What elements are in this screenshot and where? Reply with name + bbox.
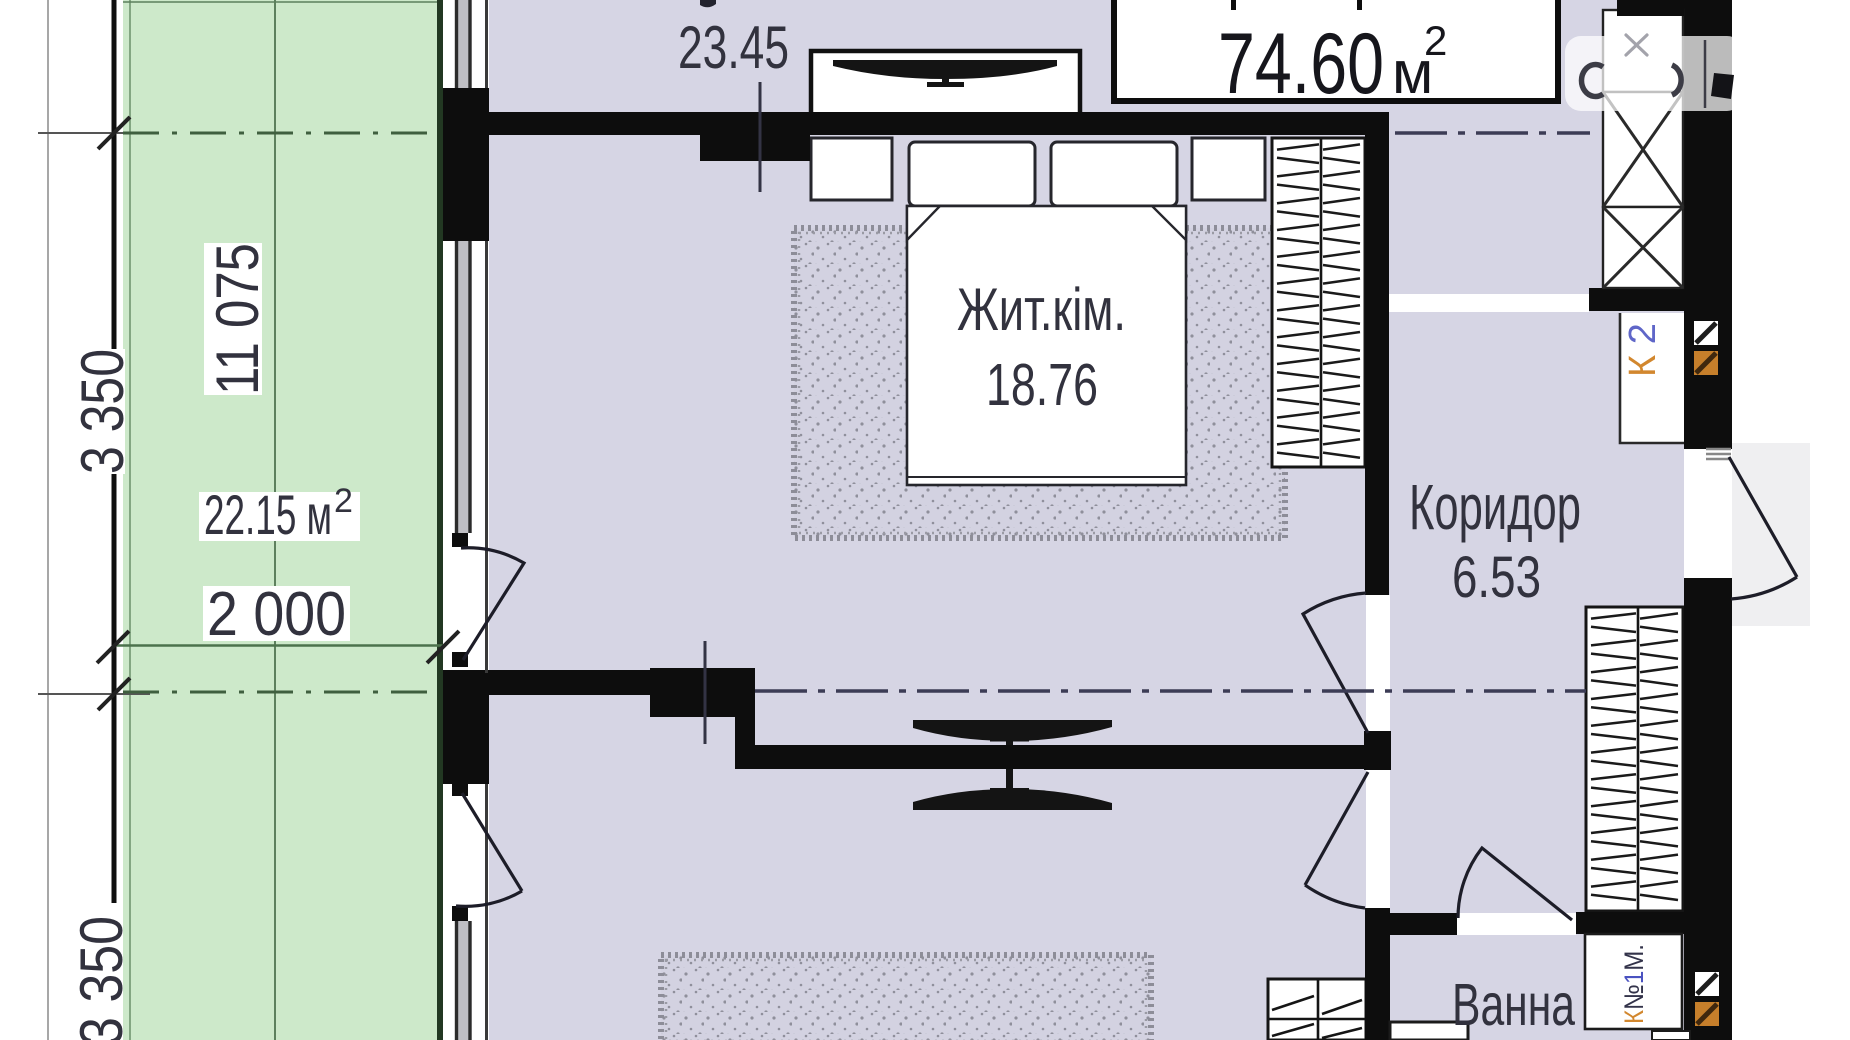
svg-text:К 2: К 2 — [1622, 323, 1664, 377]
svg-text:Коридор: Коридор — [1409, 471, 1581, 543]
svg-text:2 000: 2 000 — [207, 580, 346, 649]
svg-text:2: 2 — [1424, 17, 1447, 64]
svg-text:2: 2 — [334, 482, 353, 520]
svg-text:3 350: 3 350 — [68, 916, 135, 1040]
svg-text:Жит.кім.: Жит.кім. — [957, 276, 1126, 343]
svg-text:18.76: 18.76 — [986, 352, 1098, 418]
svg-text:6.53: 6.53 — [1452, 545, 1541, 610]
svg-text:11 075: 11 075 — [204, 243, 271, 395]
svg-text:22.15 м: 22.15 м — [204, 483, 332, 546]
svg-text:К№1М.: К№1М. — [1619, 944, 1649, 1024]
svg-text:3 350: 3 350 — [69, 349, 136, 474]
svg-text:Ванна: Ванна — [1452, 972, 1575, 1038]
svg-text:23.45: 23.45 — [678, 14, 789, 81]
svg-text:74.60: 74.60 — [1218, 16, 1384, 112]
